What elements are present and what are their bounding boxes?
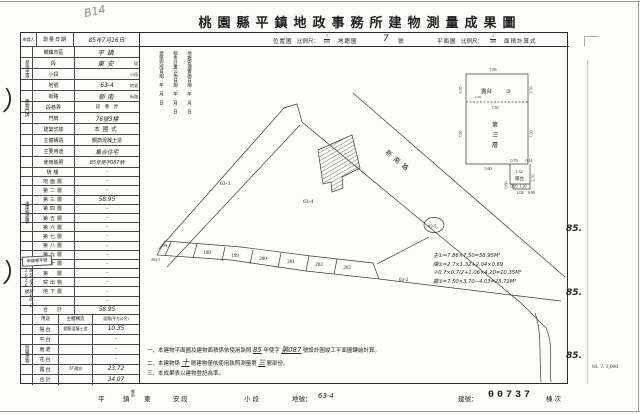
page-border-right — [638, 1, 639, 412]
inset-terrace-label: 露台 — [481, 87, 493, 95]
lot-label-198-1: 198-1 — [161, 243, 170, 248]
row-structure: 主體構造 鋼筋混凝土造 — [21, 135, 139, 146]
annotation-cadastral-date: 地籍管理實施日期：年 月 日 — [187, 51, 192, 156]
margin-mark-85-1: 85. — [566, 224, 582, 234]
house-number: 201 — [287, 260, 295, 265]
annex-row: 花台 · — [21, 355, 139, 365]
inset-floor-char-2: 三 — [492, 132, 498, 139]
row-survey-date: 申請人 測量日期 85年7月16日 — [21, 33, 139, 47]
sheet-number-unit: 號 — [398, 37, 404, 45]
annotation-completion-date: 建築完成日期：年 月 日 — [159, 51, 164, 151]
note-1: 一、本建物平面圖及建物面積係依使用執照 85 年使字 第087 號設計圖竣工平面… — [147, 345, 380, 355]
main-frame: 申請人 測量日期 85年7月16日 鄉鎮市區 平鎮 段 東安段 小段 小段 — [20, 32, 568, 384]
annex-area-header: 面積(平方公尺) — [93, 315, 139, 324]
svg-text:7.86: 7.86 — [490, 67, 497, 72]
calc-line-3: ＋0.7×0.7/2+1.06×4.20=10.35M² — [433, 269, 522, 278]
location-scale-fraction: 1 600 — [324, 34, 330, 45]
street-value: 新南街路 — [75, 91, 139, 101]
annex-total-row: 合計 34.07 — [21, 375, 139, 385]
lot-label-204-1: 204-1 — [151, 257, 160, 262]
svg-text:5.60: 5.60 — [485, 166, 492, 171]
annex-header: 用途 主體構造 面積(平方公尺) — [21, 315, 139, 325]
annex-use-header: 用途 — [33, 315, 59, 324]
svg-text:1.20: 1.20 — [520, 184, 527, 189]
row-section: 段 東安段 — [21, 58, 139, 69]
cadastral-map-label: 地籍圖 — [338, 37, 358, 45]
floor-row: 突出物· — [21, 278, 139, 287]
svg-text:0.20: 0.20 — [511, 184, 518, 189]
row-license: 使用執照 85年使字087號 — [21, 157, 139, 168]
svg-text:7.50: 7.50 — [492, 105, 499, 110]
license-label: 使用執照 — [33, 157, 75, 167]
annex-row: 平台 · — [21, 335, 139, 345]
row-lane: 段巷弄 段 巷 弄 — [21, 102, 139, 113]
corner-pencil-mark — [584, 36, 599, 46]
plan-scale-label: 比例尺： — [461, 37, 483, 45]
lot-label-63-4: 63-4 — [303, 199, 313, 205]
footer-sequence-label: 棟次 — [546, 393, 563, 403]
section-value-text: 東安 — [98, 58, 117, 68]
footer-small-section: 小段 — [244, 393, 261, 403]
lot-number-value: 63-4地號 — [75, 80, 139, 90]
plan-scale-denominator: 200 — [490, 40, 496, 45]
info-table: 申請人 測量日期 85年7月16日 鄉鎮市區 平鎮 段 東安段 小段 小段 — [21, 33, 140, 383]
section-label: 段 — [33, 58, 75, 68]
plan-map-label: 平面圖 — [437, 37, 457, 45]
note-2-floor: 三 — [258, 359, 265, 367]
door-plate-label: 門牌 — [33, 113, 75, 123]
floor-row: 地下層· — [21, 287, 139, 296]
footer-section-suffix: 段 — [181, 393, 188, 403]
margin-mark-85-3: 85. — [566, 351, 582, 361]
style-label: 建築式樣 — [33, 124, 75, 134]
footer-building-label: 建號： — [458, 393, 478, 403]
floor-row: 第七層· — [21, 232, 139, 241]
note-1-year: 85 — [253, 346, 262, 354]
street-label: 街路 — [33, 91, 75, 101]
note-3: 三、本成果表以建物登記為準。 — [147, 369, 224, 377]
floor-row: 第六層· — [21, 223, 139, 232]
group-main-building-area: 主建物面積 — [21, 170, 33, 254]
district-label: 鄉鎮市區 — [33, 47, 75, 57]
svg-text:7.50: 7.50 — [529, 131, 534, 138]
floor-row: 第八層· — [21, 242, 139, 251]
row-subsection: 小段 小段 — [21, 69, 139, 80]
floor-total-row: 合 計58.95 — [21, 306, 139, 315]
plan-scale-fraction: 1 200 — [490, 34, 496, 45]
svg-text:3.70: 3.70 — [458, 87, 463, 94]
svg-text:2.70: 2.70 — [531, 175, 536, 182]
street-text: 新南 — [99, 91, 116, 101]
map-header: 位置圖 比例尺： 1 600 地籍圖 7 號 平面圖 比例尺： 1 200 面積… — [140, 33, 569, 47]
svg-text:1.05: 1.05 — [475, 95, 481, 99]
usage-label: 主要用途 — [33, 146, 75, 156]
page-title: 桃園縣平鎮地政事務所建物測量成果圖 — [150, 12, 570, 31]
row-street: 街路 新南街路 — [21, 91, 139, 102]
application-number-stamp: 申請書字號 — [22, 255, 52, 267]
svg-text:0.60: 0.60 — [504, 182, 509, 189]
print-batch-info: 84. 7. 3,000 — [592, 364, 618, 370]
calc-line-2: 陽②=2.7×1.32+2.04×0.69 — [433, 261, 522, 270]
floor-row: 第五層· — [21, 214, 139, 223]
calc-line-1: 主①=7.86×7.50=58.95M² — [433, 252, 522, 261]
scanned-survey-document: B14 ） ） 桃園縣平鎮地政事務所建物測量成果圖 申請人 測量日期 85年7月… — [0, 0, 640, 414]
style-value: 本國式 — [75, 124, 139, 134]
note-2-storeys: 十 — [181, 358, 189, 367]
survey-date-label: 測量日期 — [37, 33, 74, 46]
subsection-label: 小段 — [33, 69, 75, 79]
lane-label: 段巷弄 — [33, 102, 75, 112]
survey-date-value: 85年7月16日 — [74, 33, 139, 46]
annex-structure-header: 主體構造 — [59, 315, 93, 324]
fold-line — [587, 60, 588, 384]
row-door-plate: 門牌 76號3樓 — [21, 113, 139, 124]
note-2: 二、本建物係 十 層建物僅依使用執照測量第 三 層部份。 — [147, 357, 289, 368]
row-lot-number: 地號 63-4地號 — [21, 80, 139, 91]
site-plan-lines — [157, 74, 565, 382]
structure-value: 鋼筋混凝土造 — [75, 135, 139, 145]
house-number: 198 — [203, 251, 211, 256]
inset-floor-char-3: 層 — [492, 142, 498, 149]
group-site-location: 基地坐落 — [21, 47, 33, 91]
lot-label-63-3: 63-3 — [220, 181, 230, 187]
annex-row-terrace: 露台 7F陽台 23.72 — [21, 365, 139, 375]
annotation-urban-plan-date: 都市計畫公佈日期：年 月 日 — [173, 51, 178, 156]
lane-suffix: 段 巷 弄 — [96, 104, 119, 110]
floor-row-third: 第三層58.95 — [21, 196, 139, 205]
svg-text:2.04: 2.04 — [517, 190, 524, 195]
pencil-mark: B14 — [83, 3, 107, 20]
house-number: 202 — [315, 263, 323, 268]
lot-label-63-2: 63-2 — [399, 278, 409, 283]
license-value: 85年使字087號 — [75, 157, 139, 167]
applicant-label: 申請人 — [21, 33, 37, 46]
floor-row: 第二層· — [21, 186, 139, 195]
section-suffix: 段 — [134, 61, 138, 67]
house-number: 203 — [343, 266, 351, 271]
section-value: 東安段 — [75, 58, 139, 68]
footer-unit-stack: 鄉 市 — [131, 390, 135, 398]
sheet-number: 7 — [383, 34, 389, 44]
area-calculation: 主①=7.86×7.50=58.95M² 陽②=2.7×1.32+2.04×0.… — [433, 252, 522, 286]
footer-unit-city: 市 — [131, 394, 135, 398]
lane-value: 段 巷 弄 — [75, 102, 139, 112]
margin-mark-85-2: 85. — [566, 288, 582, 298]
house-number: 200 — [259, 257, 267, 262]
road-name-label: 新南路 — [384, 148, 414, 175]
group-door-plate: 建物門牌 — [21, 91, 33, 124]
svg-text:0.69: 0.69 — [528, 190, 535, 195]
inset-balcony-label: 陽台 — [515, 175, 524, 182]
annex-row: 雨遮 · — [21, 345, 139, 355]
footer-strip: 平 鎮 鄉 市 東 安 段 小段 地號： 63-4 建號： 00737 棟次 — [0, 388, 640, 408]
lot-number-text: 63-4 — [100, 82, 114, 89]
footer-lot-label: 地號： — [292, 393, 312, 403]
lot-label-63-5: 63-5 — [428, 224, 437, 229]
floor-row: 地面層· — [21, 177, 139, 186]
district-value-text: 平鎮 — [98, 47, 117, 57]
calc-line-4: 露③=7.50×3.70−4.03=23.72M² — [433, 278, 522, 287]
site-plan: 63-3 63-4 63-2 63-5 198-1 204-1 新南路 198 … — [140, 47, 569, 383]
page-border-top — [0, 1, 640, 2]
lot-number-label: 地號 — [33, 80, 75, 90]
svg-text:0.14: 0.14 — [526, 158, 533, 163]
row-style: 建築式樣 本國式 — [21, 124, 139, 135]
location-scale-denominator: 600 — [324, 40, 330, 45]
inset-floor-char-1: 第 — [492, 121, 498, 129]
structure-label: 主體構造 — [33, 135, 75, 145]
footer-building-number: 00737 — [488, 390, 533, 401]
subsection-value: 小段 — [75, 69, 139, 79]
inset-circle-3: ③ — [506, 88, 511, 95]
door-plate-value: 76號3樓 — [75, 113, 139, 123]
subsection-suffix: 小段 — [130, 72, 138, 78]
svg-text:1.32: 1.32 — [516, 169, 523, 174]
note-1-number: 第087 — [281, 346, 301, 354]
footer-town: 平 鎮 — [98, 393, 136, 403]
footer-lot-value: 63-4 — [318, 392, 334, 400]
lot-number-suffix: 地號 — [130, 83, 138, 89]
usage-value: 集合住宅 — [75, 146, 139, 156]
annex-row-balcony: 陽台 鋼筋混凝土造 10.35 — [21, 325, 139, 335]
district-value: 平鎮 — [75, 47, 139, 57]
row-district: 鄉鎮市區 平鎮 — [21, 47, 139, 58]
svg-text:3.70: 3.70 — [529, 87, 534, 94]
floor-row: 第四層· — [21, 205, 139, 214]
location-scale-label: 比例尺： — [297, 37, 319, 45]
group-annex-building: 附屬建物 — [21, 329, 33, 379]
floor-row: 第 層· — [21, 269, 139, 278]
svg-text:7.50: 7.50 — [458, 131, 463, 138]
application-number-value: 85年7月16日1016號 — [23, 269, 32, 327]
page-border-bottom — [0, 411, 640, 412]
area-calc-label: 面積計算式 — [504, 37, 537, 45]
location-map-label: 位置圖 — [273, 37, 293, 45]
house-number: 199 — [231, 254, 239, 259]
floor-row: · — [21, 297, 139, 306]
svg-text:0.70: 0.70 — [511, 158, 518, 163]
street-suffix: 街路 — [130, 94, 138, 100]
row-usage: 主要用途 集合住宅 — [21, 146, 139, 157]
floor-row: 騎樓· — [21, 168, 139, 177]
